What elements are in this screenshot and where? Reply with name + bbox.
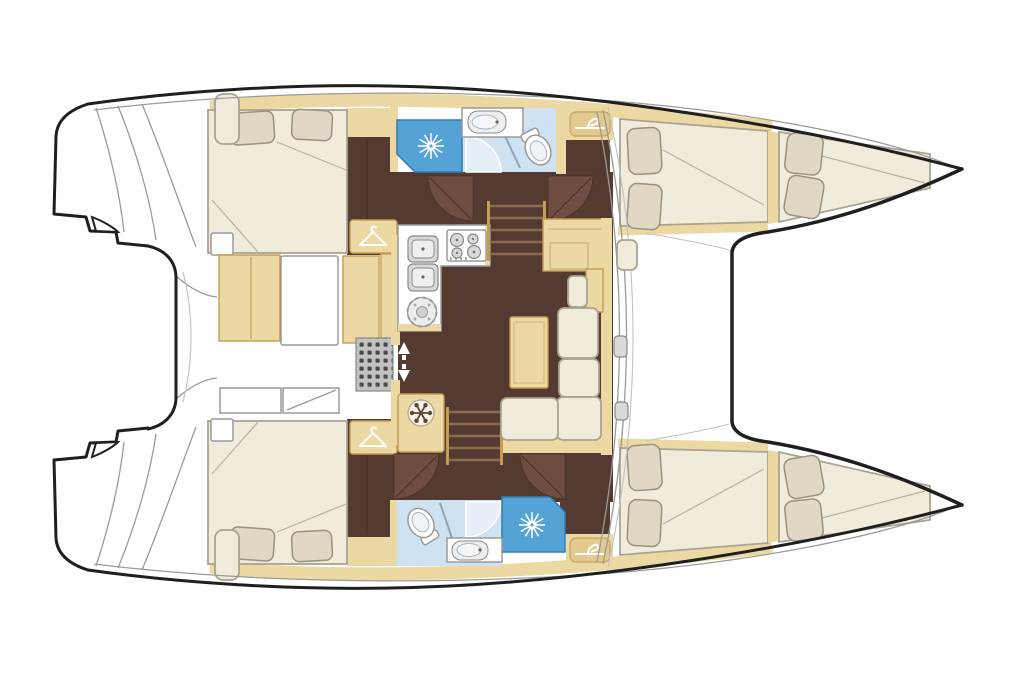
knob — [450, 257, 452, 259]
window-latch — [614, 336, 627, 357]
top-aft-wardrobe — [350, 220, 397, 253]
salon-table — [510, 317, 548, 388]
fwd-bulkhead — [768, 131, 779, 224]
pillow — [783, 174, 825, 220]
burner-dot — [456, 239, 459, 242]
helm-seat — [215, 94, 239, 144]
bottom-forward-cabin — [620, 444, 930, 555]
bathroom-wall — [390, 500, 398, 566]
burner-center — [417, 307, 428, 318]
nav-cabinet — [543, 219, 609, 271]
pillow — [627, 444, 663, 491]
knob — [460, 257, 462, 259]
cockpit-table — [281, 256, 338, 345]
davit-line — [176, 276, 217, 297]
top-swim-step — [92, 217, 118, 232]
deck-grating — [356, 338, 393, 391]
cockpit-bench-cushion — [343, 256, 379, 343]
floorplan-stage — [0, 0, 1013, 674]
cockpit-step — [211, 233, 233, 255]
burner-dot — [473, 251, 476, 254]
arrow-stem — [402, 355, 406, 360]
arrow-stem — [402, 364, 406, 369]
sink-faucet — [478, 548, 481, 551]
window-latch — [615, 402, 628, 420]
catamaran-floorplan — [0, 0, 1013, 674]
cockpit-locker — [220, 388, 281, 413]
bottom-hull-cabinet-block — [347, 536, 397, 566]
sofa-corner-cushion — [557, 397, 601, 440]
transom-step-line — [96, 442, 124, 566]
fwd-bulkhead — [768, 450, 779, 543]
crossbeam-shadow-line — [183, 272, 191, 402]
dot — [414, 304, 417, 307]
pillow — [627, 127, 662, 175]
bottom-swim-step — [92, 442, 118, 457]
transom-step-line — [142, 104, 196, 247]
sofa-cushion — [558, 308, 598, 358]
pillow — [626, 183, 662, 230]
aft-crossbeam-outline — [148, 246, 176, 429]
pillow — [291, 530, 333, 562]
sofa-armrest — [586, 269, 603, 312]
burner-dot — [456, 252, 458, 254]
round-burner-icon — [408, 298, 437, 327]
dot — [428, 304, 431, 307]
knob — [455, 257, 457, 259]
salon-side-wall — [601, 218, 612, 455]
sofa-cushion — [501, 398, 558, 440]
top-hull-cabinet-block — [347, 108, 397, 138]
cockpit-step — [211, 419, 233, 441]
top-forward-cabin — [620, 119, 930, 230]
foredeck-line — [645, 233, 729, 250]
sofa-cushion — [568, 276, 587, 307]
cockpit-bench-cushion — [219, 255, 280, 341]
bottom-aft-wardrobe — [350, 421, 397, 454]
sink-basin — [472, 115, 498, 129]
refrigerator — [398, 394, 444, 452]
knob — [465, 257, 467, 259]
foredeck-seat-pad — [617, 240, 637, 270]
sofa-cushion — [559, 359, 599, 397]
stair-rail — [446, 407, 449, 465]
stair-rail — [487, 201, 490, 261]
pillow — [783, 454, 825, 500]
pillow — [784, 132, 824, 176]
davit-line — [176, 378, 217, 399]
transom-step-line — [96, 108, 124, 232]
sink-drain — [421, 247, 424, 250]
helm-seat — [215, 530, 239, 580]
pillow — [291, 109, 333, 141]
dot — [414, 318, 417, 321]
stove-burners-icon — [447, 230, 486, 261]
sink-drain — [421, 275, 424, 278]
burner-dot — [472, 238, 474, 240]
foredeck-line — [645, 424, 729, 441]
bathroom-wall — [556, 106, 566, 174]
pillow — [784, 498, 824, 542]
transom-step-line — [142, 427, 196, 570]
dot — [428, 318, 431, 321]
sink-faucet — [495, 120, 498, 123]
sink-basin — [457, 544, 481, 557]
pillow — [627, 499, 662, 547]
salon — [391, 176, 613, 499]
